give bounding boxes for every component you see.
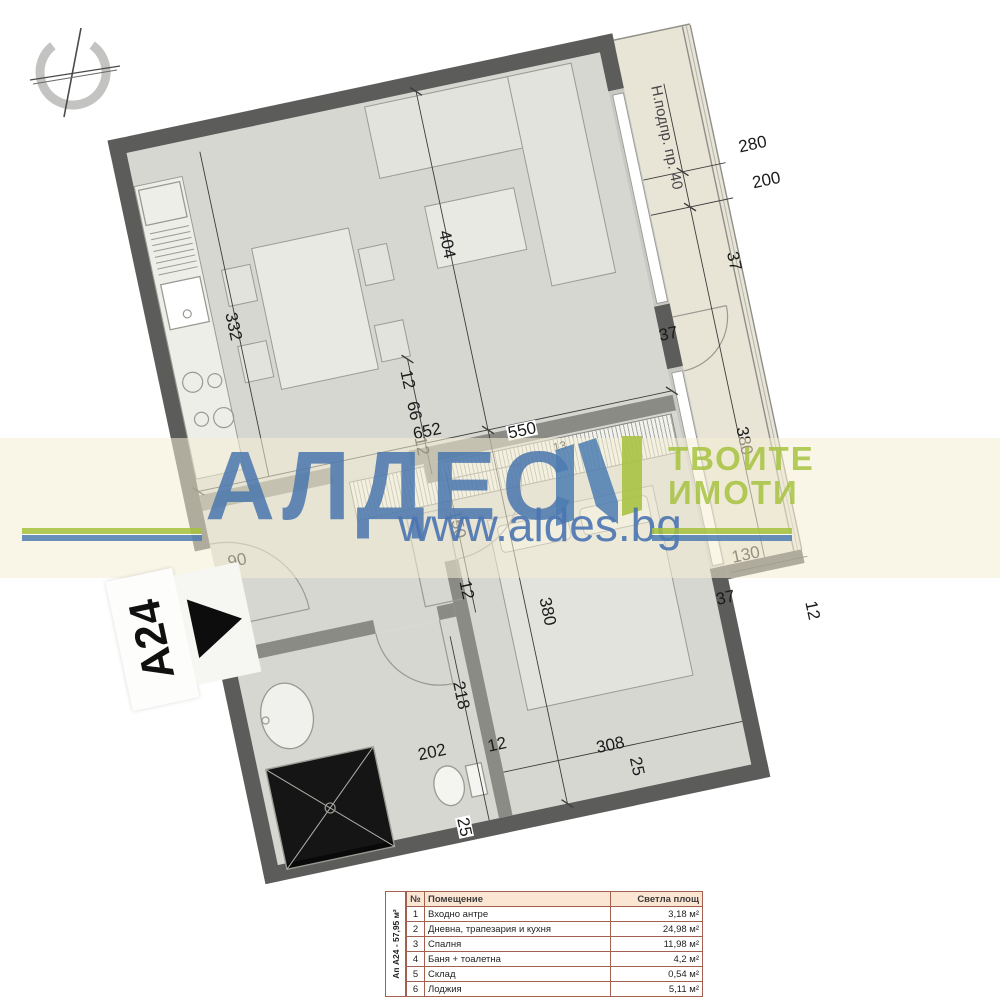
- row-room: Входно антре: [425, 907, 611, 922]
- dim-label: 66: [402, 400, 425, 423]
- row-room: Спалня: [425, 937, 611, 952]
- table-row: 1 Входно антре 3,18 м²: [407, 907, 703, 922]
- col-header-area: Светла площ: [611, 892, 703, 907]
- table-row: 5 Склад 0,54 м²: [407, 967, 703, 982]
- row-area: 3,18 м²: [611, 907, 703, 922]
- compass-icon: [20, 16, 130, 126]
- watermark-rule-right: [652, 528, 792, 541]
- row-area: 24,98 м²: [611, 922, 703, 937]
- row-area: 5,11 м²: [611, 982, 703, 997]
- col-header-num: №: [407, 892, 425, 907]
- unit-tag: A24: [105, 553, 270, 715]
- dim-label: 37: [657, 323, 680, 346]
- row-area: 11,98 м²: [611, 937, 703, 952]
- unit-summary-label: Ап А24 - 57,95 м²: [391, 909, 401, 979]
- row-room: Дневна, трапезария и кухня: [425, 922, 611, 937]
- unit-summary-cell: Ап А24 - 57,95 м²: [385, 891, 406, 997]
- row-room: Лоджия: [425, 982, 611, 997]
- dim-label: 37: [714, 586, 737, 609]
- watermark-rule-left: [22, 528, 202, 541]
- row-room: Склад: [425, 967, 611, 982]
- col-header-room: Помещение: [425, 892, 611, 907]
- row-area: 4,2 м²: [611, 952, 703, 967]
- row-num: 4: [407, 952, 425, 967]
- room-area-table: № Помещение Светла площ 1 Входно антре 3…: [406, 891, 703, 997]
- dim-label: 280: [737, 132, 769, 157]
- dim-label: 25: [455, 815, 474, 839]
- row-num: 3: [407, 937, 425, 952]
- row-num: 5: [407, 967, 425, 982]
- dim-label: 200: [750, 168, 782, 193]
- brand-tagline-2: ИМОТИ: [668, 474, 799, 512]
- row-num: 6: [407, 982, 425, 997]
- table-row: 4 Баня + тоалетна 4,2 м²: [407, 952, 703, 967]
- dim-label: 25: [625, 755, 648, 778]
- brand-tagline-1: ТВОИТЕ: [668, 440, 815, 478]
- row-num: 2: [407, 922, 425, 937]
- row-room: Баня + тоалетна: [425, 952, 611, 967]
- area-table: Ап А24 - 57,95 м² № Помещение Светла пло…: [385, 891, 703, 997]
- page: { "watermark": { "brand": "АЛДЕС", "tagl…: [0, 0, 1000, 1000]
- table-row: 3 Спалня 11,98 м²: [407, 937, 703, 952]
- table-row: 6 Лоджия 5,11 м²: [407, 982, 703, 997]
- row-num: 1: [407, 907, 425, 922]
- row-area: 0,54 м²: [611, 967, 703, 982]
- table-row: 2 Дневна, трапезария и кухня 24,98 м²: [407, 922, 703, 937]
- dim-label: 12: [486, 733, 509, 756]
- brand-website: www.aldes.bg: [398, 498, 682, 552]
- table-header-row: № Помещение Светла площ: [407, 892, 703, 907]
